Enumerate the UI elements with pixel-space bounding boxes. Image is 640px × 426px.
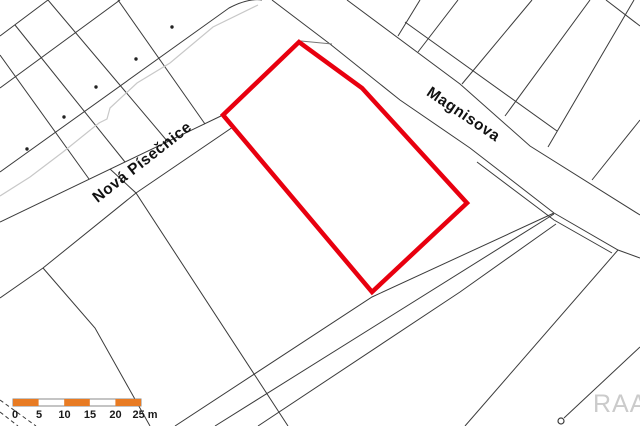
boundary-line — [15, 25, 125, 162]
parcel-dot — [94, 85, 97, 88]
boundary-line — [258, 224, 556, 426]
cadastral-map: Nová Písečnice Magnisova 0 5 10 15 20 25… — [0, 0, 640, 426]
boundary-line — [0, 0, 120, 88]
boundary-line — [0, 0, 262, 172]
parcel-boundary-lines-northwest — [0, 0, 288, 426]
boundary-line — [48, 0, 168, 142]
parcel-dot-markers — [25, 25, 173, 150]
boundary-line — [175, 213, 554, 426]
boundary-line — [0, 0, 48, 36]
parcel-dot — [134, 57, 137, 60]
scale-tick-label: 15 — [84, 409, 96, 421]
circle-symbol — [558, 418, 564, 424]
scale-bar-segment — [64, 399, 90, 406]
street-edge-east — [347, 0, 640, 215]
boundary-line — [548, 0, 634, 147]
watermark-raa: RAA — [593, 390, 640, 418]
street-label-magnisova: Magnisova — [423, 84, 503, 145]
highlighted-parcel-outline — [223, 42, 467, 292]
boundary-line — [418, 0, 458, 52]
parcel-dot — [170, 25, 173, 28]
street-label-nova-pisecnice: Nová Písečnice — [90, 119, 196, 207]
parcel-dot — [62, 115, 65, 118]
boundary-line — [592, 120, 640, 180]
scale-tick-label: 20 — [109, 409, 121, 421]
scale-bar-segment — [13, 399, 39, 406]
boundary-line — [215, 214, 554, 426]
scale-bar: 0 5 10 15 20 25 m — [12, 399, 158, 421]
scale-tick-label: 5 — [36, 409, 42, 421]
boundary-line — [110, 169, 288, 426]
scale-tick-label: 10 — [58, 409, 70, 421]
parcel-dot — [25, 147, 28, 150]
scale-bar-segment — [115, 399, 141, 406]
scale-tick-label: 0 — [12, 409, 18, 421]
map-canvas: Nová Písečnice Magnisova 0 5 10 15 20 25… — [0, 0, 640, 426]
boundary-line — [118, 0, 205, 124]
boundary-line — [554, 213, 640, 258]
scale-unit-label: 25 m — [132, 409, 157, 421]
boundary-line — [606, 0, 640, 26]
street-edge-lower — [0, 127, 233, 298]
boundary-line — [462, 0, 532, 84]
parcel-boundary-lines-south — [175, 213, 640, 426]
boundary-line — [0, 55, 89, 179]
